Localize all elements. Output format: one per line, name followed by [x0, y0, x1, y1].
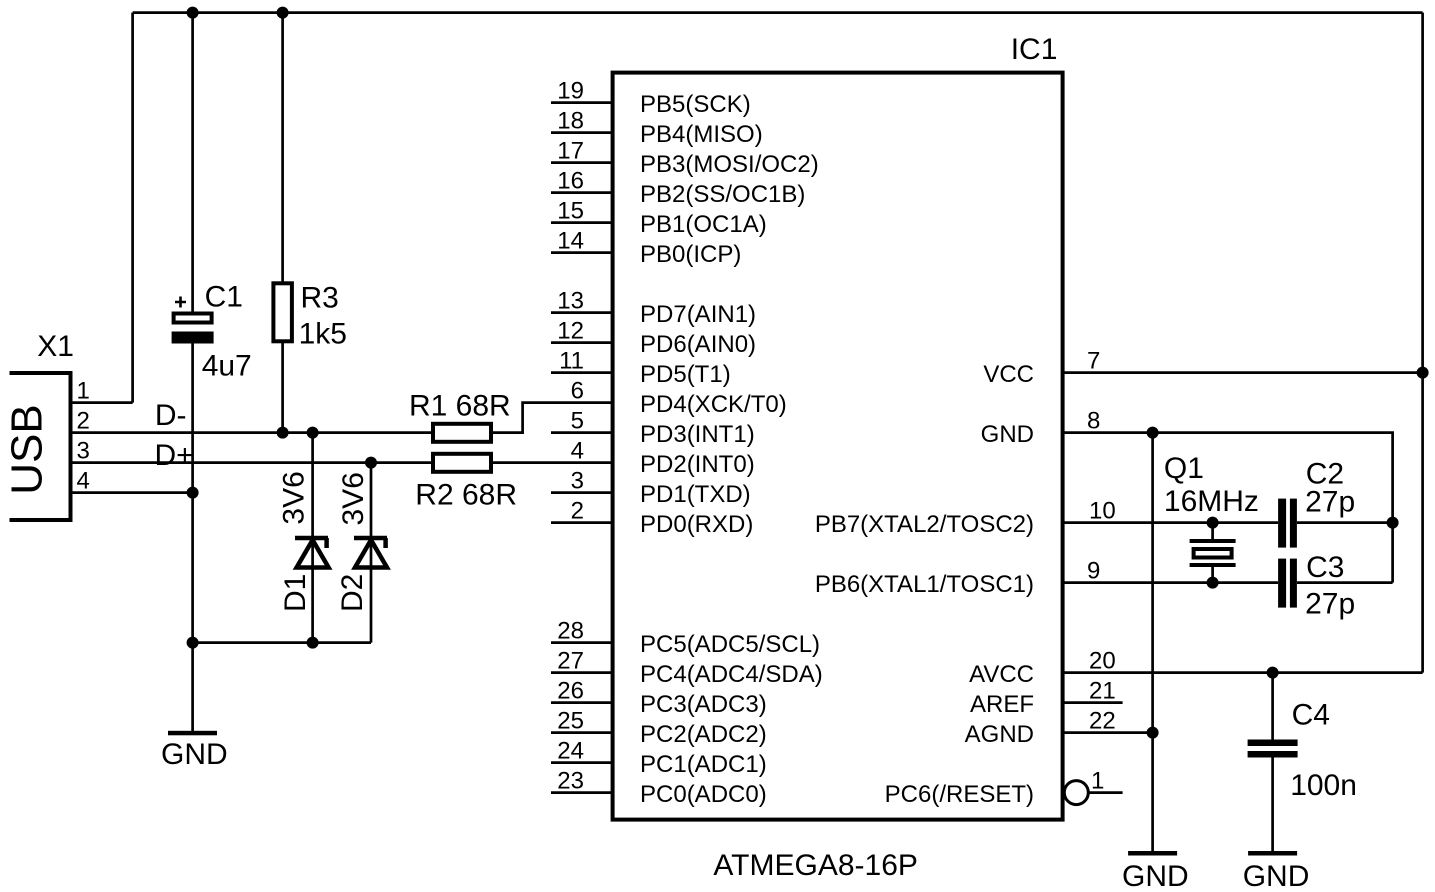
- svg-text:VCC: VCC: [983, 361, 1034, 388]
- svg-text:27: 27: [557, 648, 584, 675]
- svg-text:D1: D1: [279, 574, 312, 612]
- svg-text:1: 1: [77, 378, 90, 405]
- svg-text:22: 22: [1089, 708, 1116, 735]
- svg-text:C3: C3: [1306, 551, 1344, 584]
- svg-text:PD7(AIN1): PD7(AIN1): [640, 301, 756, 328]
- svg-text:D2: D2: [336, 574, 369, 612]
- svg-text:D+: D+: [155, 439, 194, 472]
- svg-text:GND: GND: [1122, 860, 1189, 892]
- svg-text:PB3(MOSI/OC2): PB3(MOSI/OC2): [640, 151, 819, 178]
- svg-text:GND: GND: [1243, 860, 1310, 892]
- svg-text:3: 3: [77, 438, 90, 465]
- svg-text:20: 20: [1089, 648, 1116, 675]
- svg-text:AVCC: AVCC: [969, 661, 1034, 688]
- svg-text:PB5(SCK): PB5(SCK): [640, 91, 751, 118]
- svg-text:GND: GND: [981, 421, 1034, 448]
- svg-text:PC0(ADC0): PC0(ADC0): [640, 781, 767, 808]
- svg-text:16: 16: [557, 168, 584, 195]
- svg-text:IC1: IC1: [1011, 33, 1058, 66]
- svg-text:PD1(TXD): PD1(TXD): [640, 481, 751, 508]
- svg-text:ATMEGA8-16P: ATMEGA8-16P: [713, 849, 918, 882]
- svg-text:12: 12: [557, 318, 584, 345]
- svg-text:19: 19: [557, 78, 584, 105]
- svg-text:14: 14: [557, 228, 584, 255]
- svg-text:PC3(ADC3): PC3(ADC3): [640, 691, 767, 718]
- svg-text:100n: 100n: [1290, 769, 1357, 802]
- svg-text:16MHz: 16MHz: [1164, 485, 1259, 518]
- svg-text:27p: 27p: [1305, 486, 1355, 519]
- svg-text:15: 15: [557, 198, 584, 225]
- svg-text:PC5(ADC5/SCL): PC5(ADC5/SCL): [640, 631, 820, 658]
- svg-text:4: 4: [571, 438, 584, 465]
- svg-text:AGND: AGND: [965, 721, 1034, 748]
- svg-text:3V6: 3V6: [337, 472, 370, 525]
- svg-text:4u7: 4u7: [202, 349, 252, 382]
- svg-text:1: 1: [1091, 768, 1104, 795]
- svg-text:5: 5: [571, 408, 584, 435]
- svg-text:9: 9: [1087, 558, 1100, 585]
- svg-text:17: 17: [557, 138, 584, 165]
- svg-text:25: 25: [557, 708, 584, 735]
- svg-text:PD0(RXD): PD0(RXD): [640, 511, 753, 538]
- svg-text:24: 24: [557, 738, 584, 765]
- svg-text:2: 2: [77, 408, 90, 435]
- svg-text:PD5(T1): PD5(T1): [640, 361, 731, 388]
- svg-text:PC1(ADC1): PC1(ADC1): [640, 751, 767, 778]
- svg-text:PC6(/RESET): PC6(/RESET): [885, 781, 1034, 808]
- svg-text:GND: GND: [161, 738, 228, 771]
- svg-text:11: 11: [559, 348, 584, 375]
- svg-text:PB6(XTAL1/TOSC1): PB6(XTAL1/TOSC1): [815, 571, 1034, 598]
- svg-text:Q1: Q1: [1164, 452, 1204, 485]
- svg-text:PB4(MISO): PB4(MISO): [640, 121, 763, 148]
- svg-text:13: 13: [557, 288, 584, 315]
- svg-text:26: 26: [557, 678, 584, 705]
- svg-text:27p: 27p: [1305, 588, 1355, 621]
- svg-text:7: 7: [1087, 348, 1100, 375]
- svg-text:C4: C4: [1292, 699, 1330, 732]
- svg-text:28: 28: [557, 618, 584, 645]
- svg-text:PD4(XCK/T0): PD4(XCK/T0): [640, 391, 787, 418]
- svg-text:AREF: AREF: [970, 691, 1034, 718]
- svg-text:21: 21: [1089, 678, 1116, 705]
- svg-text:PD2(INT0): PD2(INT0): [640, 451, 755, 478]
- svg-text:X1: X1: [37, 330, 74, 363]
- svg-text:PB1(OC1A): PB1(OC1A): [640, 211, 767, 238]
- svg-text:C1: C1: [205, 281, 243, 314]
- svg-text:PD3(INT1): PD3(INT1): [640, 421, 755, 448]
- svg-text:8: 8: [1087, 408, 1100, 435]
- svg-text:PB2(SS/OC1B): PB2(SS/OC1B): [640, 181, 805, 208]
- svg-text:R1 68R: R1 68R: [409, 390, 511, 423]
- svg-text:PB7(XTAL2/TOSC2): PB7(XTAL2/TOSC2): [815, 511, 1034, 538]
- svg-text:R2 68R: R2 68R: [415, 479, 517, 512]
- svg-text:PC4(ADC4/SDA): PC4(ADC4/SDA): [640, 661, 823, 688]
- svg-text:D-: D-: [155, 399, 187, 432]
- svg-text:PC2(ADC2): PC2(ADC2): [640, 721, 767, 748]
- svg-text:PB0(ICP): PB0(ICP): [640, 241, 741, 268]
- svg-text:USB: USB: [3, 404, 52, 494]
- svg-text:3V6: 3V6: [277, 471, 310, 524]
- svg-text:PD6(AIN0): PD6(AIN0): [640, 331, 756, 358]
- svg-text:2: 2: [571, 498, 584, 525]
- svg-text:23: 23: [557, 768, 584, 795]
- svg-text:10: 10: [1089, 498, 1116, 525]
- svg-text:4: 4: [77, 468, 90, 495]
- svg-text:18: 18: [557, 108, 584, 135]
- svg-text:6: 6: [571, 378, 584, 405]
- svg-text:1k5: 1k5: [299, 317, 347, 350]
- svg-text:R3: R3: [301, 282, 339, 315]
- svg-text:3: 3: [571, 468, 584, 495]
